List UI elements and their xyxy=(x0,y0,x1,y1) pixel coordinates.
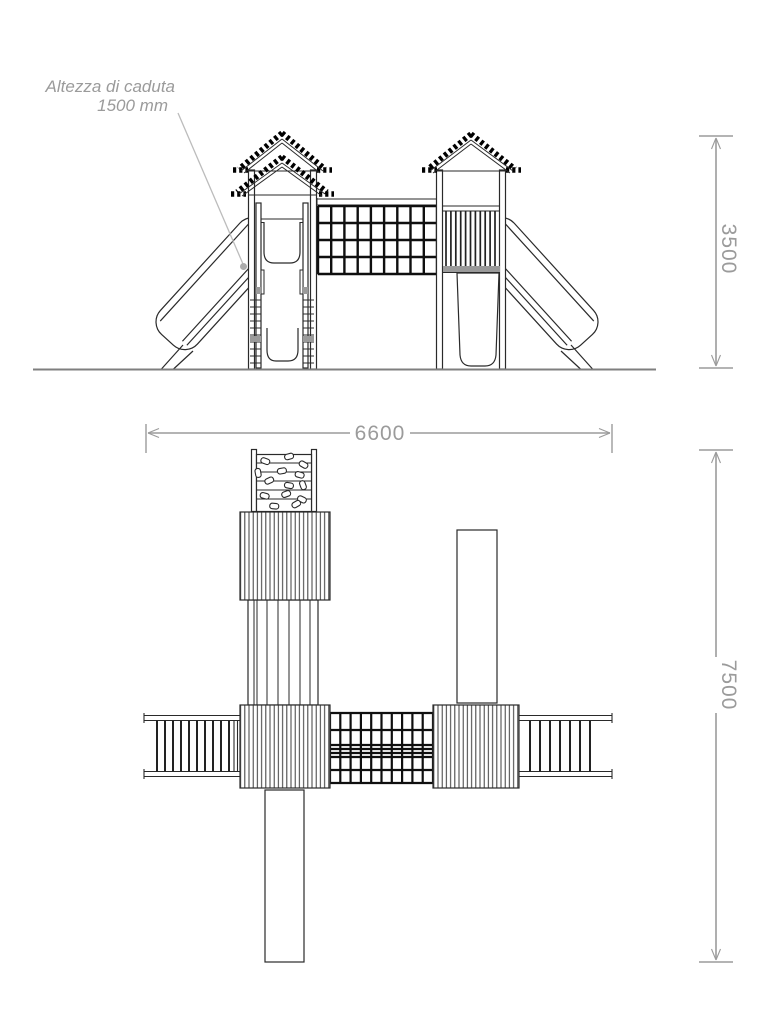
dim-3500-label: 3500 xyxy=(717,224,740,275)
right-tower-roof xyxy=(422,134,521,173)
dimension-6600: 6600 xyxy=(146,422,612,453)
dimension-3500: 3500 xyxy=(699,136,740,368)
bridge-strip-plan xyxy=(248,600,318,705)
south-slide-plan xyxy=(265,790,304,962)
right-tower-panel xyxy=(457,273,499,366)
left-ladder-plan xyxy=(144,713,240,779)
net-bridge-elevation xyxy=(317,198,438,275)
fall-height-label-line1: Altezza di caduta xyxy=(45,77,175,96)
climbing-wall-plan xyxy=(252,450,317,512)
north-slide-plan xyxy=(457,530,497,703)
dim-6600-label: 6600 xyxy=(355,422,406,445)
fall-height-annotation: Altezza di caduta 1500 mm xyxy=(45,77,247,270)
dim-7500-label: 7500 xyxy=(717,660,740,711)
leader-dot xyxy=(240,263,247,270)
right-platform-plan xyxy=(433,705,519,788)
center-platform-plan xyxy=(240,705,330,788)
right-ladder-plan xyxy=(519,713,612,779)
elevation-view xyxy=(33,133,656,370)
dimension-7500: 7500 xyxy=(699,450,740,962)
plan-view xyxy=(144,450,612,963)
left-platform-plan xyxy=(240,512,330,600)
technical-drawing-canvas: Altezza di caduta 1500 mm 3500 xyxy=(0,0,768,1024)
net-bridge-plan xyxy=(330,713,433,783)
leader-line xyxy=(178,113,243,264)
fall-height-label-line2: 1500 mm xyxy=(97,96,168,115)
